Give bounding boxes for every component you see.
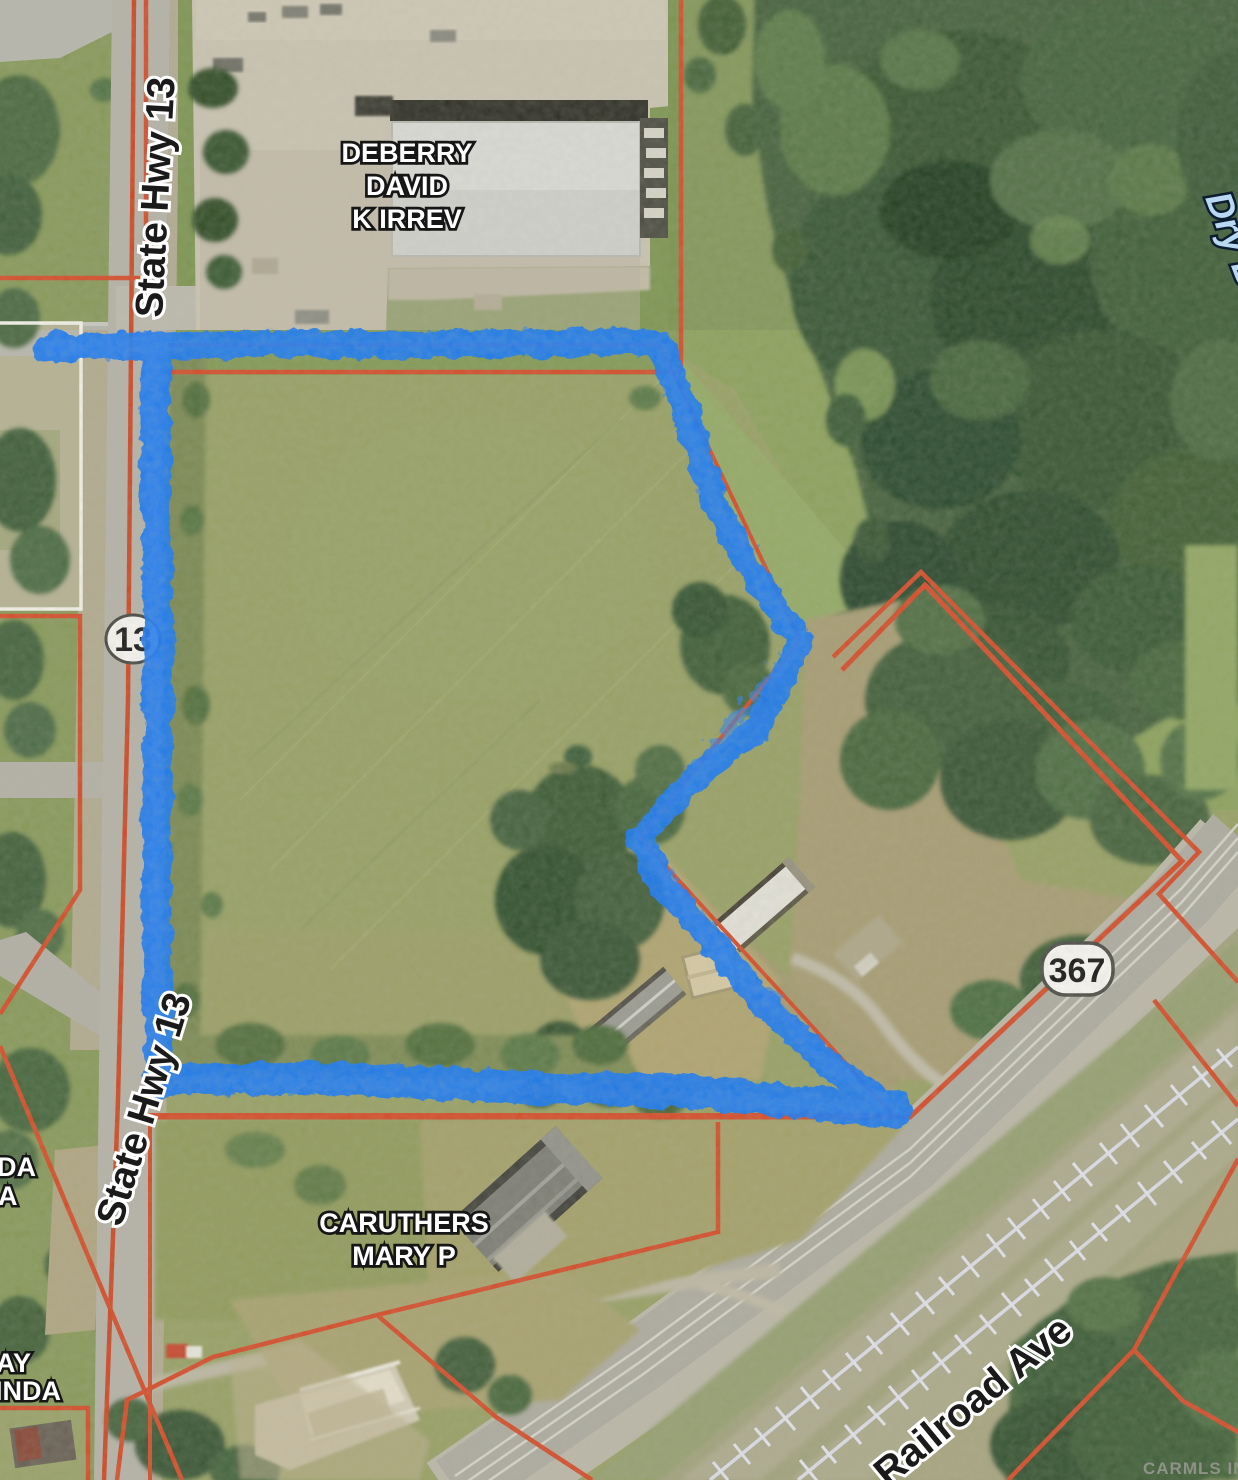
svg-text:CARMLS INC: CARMLS INC bbox=[1143, 1459, 1238, 1478]
svg-text:AY: AY bbox=[0, 1348, 31, 1378]
svg-text:DAVID: DAVID bbox=[366, 171, 448, 201]
svg-text:INDA: INDA bbox=[0, 1376, 61, 1406]
svg-text:DEBERRY: DEBERRY bbox=[341, 138, 472, 168]
svg-text:CARUTHERS: CARUTHERS bbox=[319, 1208, 489, 1238]
svg-text:A: A bbox=[0, 1181, 18, 1211]
svg-text:MARY P: MARY P bbox=[352, 1241, 456, 1271]
svg-text:K IRREV: K IRREV bbox=[352, 204, 462, 234]
svg-text:DA: DA bbox=[0, 1152, 36, 1182]
